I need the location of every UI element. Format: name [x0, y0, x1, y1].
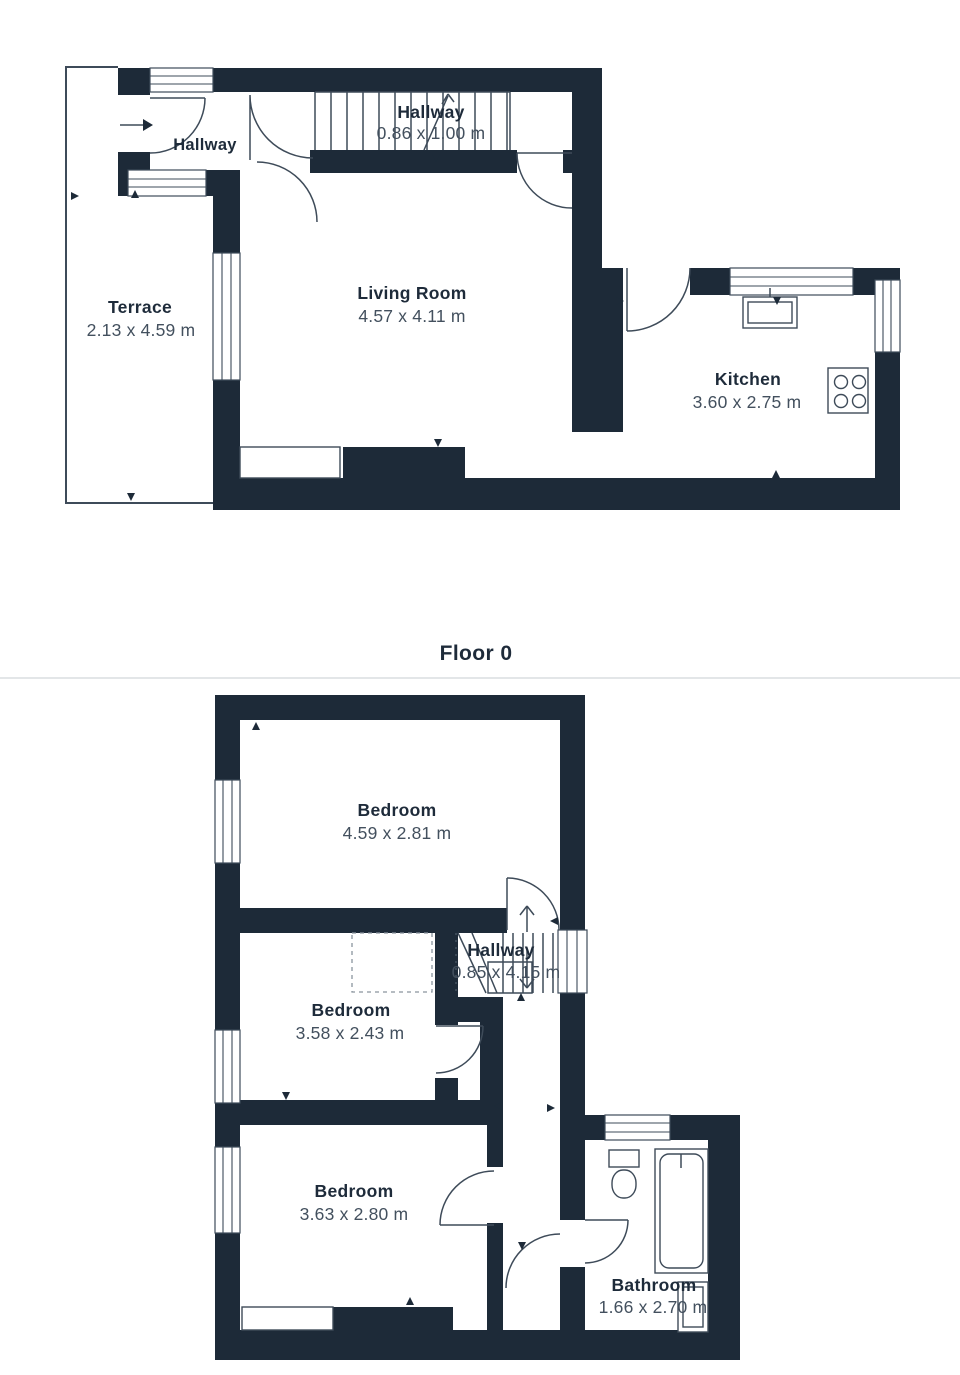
bedroom-middle-window	[215, 1030, 240, 1103]
toilet	[609, 1150, 639, 1198]
living-room-label: Living Room	[357, 283, 466, 303]
stair-up-arrow-icon	[520, 906, 534, 932]
bedroom-bottom-door-swing	[440, 1171, 494, 1225]
double-door-swing	[250, 95, 317, 222]
bedroom-middle-dims: 3.58 x 2.43 m	[296, 1023, 405, 1043]
bedroom-bottom-label: Bedroom	[315, 1181, 394, 1201]
floor1-plan: Bedroom 4.59 x 2.81 m Hallway 0.85 x 4.1…	[215, 695, 740, 1360]
bedroom-middle-door-swing	[436, 1026, 483, 1073]
kitchen-label: Kitchen	[715, 369, 781, 389]
bedroom-top-label: Bedroom	[358, 800, 437, 820]
stair-hallway-label: Hallway	[397, 102, 464, 122]
entry-hallway-label: Hallway	[173, 136, 237, 154]
terrace-dims: 2.13 x 4.59 m	[87, 320, 196, 340]
kitchen-door-swing	[627, 268, 690, 331]
bathroom-door-swing	[585, 1220, 628, 1263]
floorplan-page: Hallway Hallway 0.86 x 1.00 m Terrace 2.…	[0, 0, 960, 1375]
floor0-labels: Hallway Hallway 0.86 x 1.00 m Terrace 2.…	[87, 102, 802, 412]
kitchen-top-window	[730, 268, 853, 295]
wardrobe-dashed	[352, 933, 432, 992]
kitchen-dims: 3.60 x 2.75 m	[693, 392, 802, 412]
hallway-label: Hallway	[467, 940, 534, 960]
window-sill-floor1	[242, 1307, 333, 1330]
stair-window	[558, 930, 587, 993]
bedroom-bottom-window	[215, 1147, 240, 1233]
entry-side-window	[128, 170, 206, 196]
kitchen-side-window	[875, 280, 900, 352]
corridor-door-swing	[506, 1234, 560, 1288]
kitchen-hob	[828, 368, 868, 413]
bathtub	[655, 1149, 708, 1273]
hallway-dims: 0.85 x 4.15 m	[452, 962, 561, 982]
window-sill	[240, 447, 340, 478]
floorplan-image: Hallway Hallway 0.86 x 1.00 m Terrace 2.…	[0, 0, 960, 1375]
bedroom-top-door-swing	[507, 878, 559, 930]
living-room-dims: 4.57 x 4.11 m	[358, 306, 465, 326]
bathroom-dims: 1.66 x 2.70 m	[599, 1297, 708, 1317]
bathroom-label: Bathroom	[611, 1275, 696, 1295]
bathroom-window	[605, 1115, 670, 1140]
floor0-plan: Hallway Hallway 0.86 x 1.00 m Terrace 2.…	[66, 67, 900, 510]
terrace-label: Terrace	[108, 297, 172, 317]
bedroom-middle-label: Bedroom	[312, 1000, 391, 1020]
entry-top-window	[150, 68, 213, 92]
terrace-outline	[66, 67, 213, 503]
living-room-window	[213, 253, 240, 380]
entry-arrow-icon	[120, 119, 153, 131]
floor-title: Floor 0	[440, 642, 513, 665]
bedroom-bottom-dims: 3.63 x 2.80 m	[300, 1204, 409, 1224]
bedroom-top-dims: 4.59 x 2.81 m	[343, 823, 452, 843]
bedroom-top-window	[215, 780, 240, 863]
stair-hallway-dims: 0.86 x 1.00 m	[377, 123, 486, 143]
